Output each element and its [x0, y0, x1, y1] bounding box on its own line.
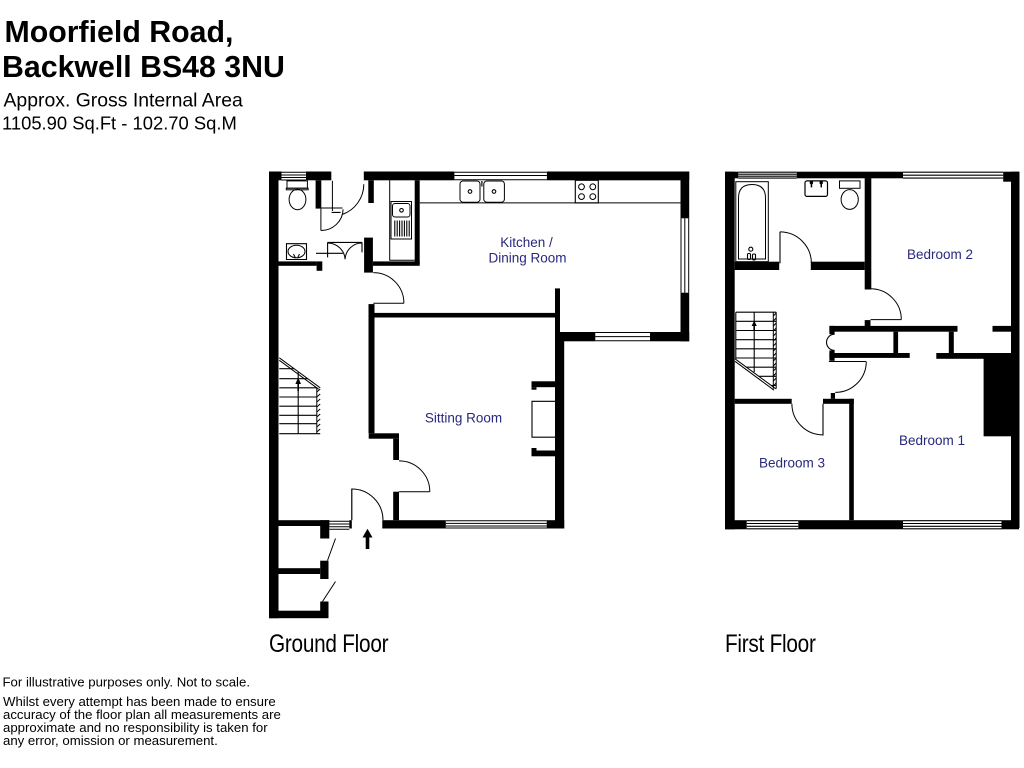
svg-text:Backwell BS48 3NU: Backwell BS48 3NU [2, 51, 285, 84]
svg-text:Sitting Room: Sitting Room [425, 411, 502, 426]
svg-text:Bedroom 3: Bedroom 3 [759, 456, 825, 471]
svg-text:Ground Floor: Ground Floor [269, 629, 389, 657]
svg-text:Bedroom 1: Bedroom 1 [899, 433, 965, 448]
svg-text:Approx. Gross Internal Area: Approx. Gross Internal Area [4, 90, 243, 112]
svg-text:any error, omission or measure: any error, omission or measurement. [3, 733, 218, 748]
svg-text:For illustrative purposes only: For illustrative purposes only. Not to s… [3, 675, 251, 690]
svg-text:Bedroom 2: Bedroom 2 [907, 247, 973, 262]
svg-text:Moorfield Road,: Moorfield Road, [5, 16, 234, 49]
svg-text:First Floor: First Floor [725, 629, 816, 657]
svg-text:Kitchen /: Kitchen / [500, 235, 553, 250]
svg-text:Dining Room: Dining Room [488, 251, 566, 266]
svg-text:1105.90 Sq.Ft - 102.70 Sq.M: 1105.90 Sq.Ft - 102.70 Sq.M [2, 113, 237, 134]
